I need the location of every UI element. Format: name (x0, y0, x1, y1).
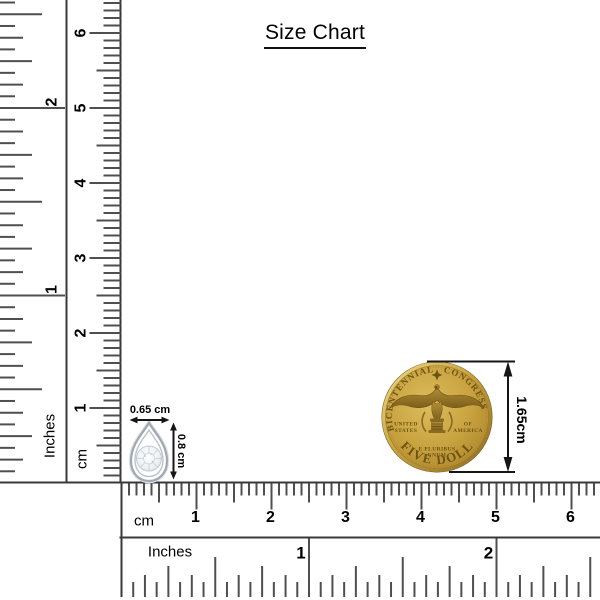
pendant-width-label: 0.65 cm (130, 404, 170, 416)
coin-height-arrow (427, 362, 515, 473)
coin-height-label: 1.65cm (514, 396, 530, 443)
pendant-width-arrow (130, 417, 170, 424)
size-chart-image: 1212345612345612 Size Chart Inches cm cm… (0, 0, 600, 600)
dimension-annotations (0, 0, 600, 600)
pendant-height-label: 0.8 cm (175, 434, 187, 468)
